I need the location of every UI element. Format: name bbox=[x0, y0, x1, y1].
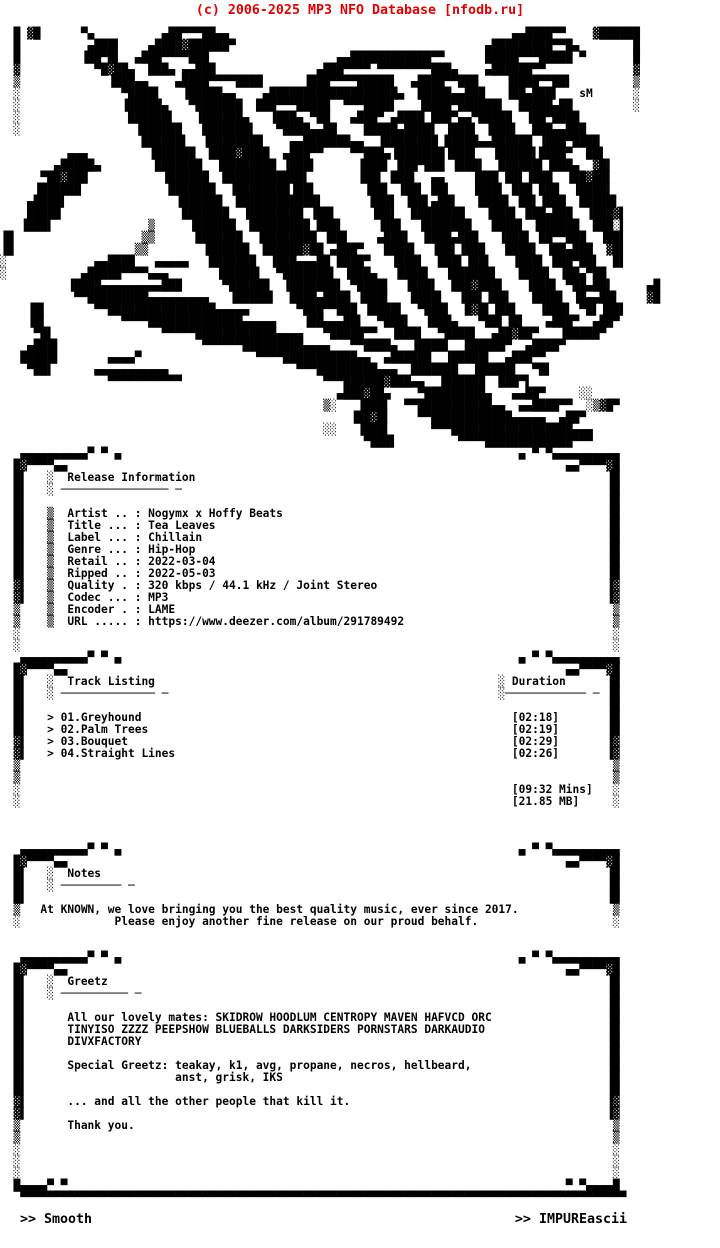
ascii-logo: █ ▓█ ▀▄ ▄██▀▀▀██▄▄ ▄▄████▀▀ ▓██████ █ ▄█… bbox=[0, 28, 720, 448]
track-listing-section: ▄▄▄▄▄▄▄▄▄▄▀ ▀ ▄ ▄ ▀ ▀▄▄▄▄▄▄▄▄▄▄ █▓▀▀▀▀▄▄… bbox=[0, 652, 720, 808]
section-gap bbox=[0, 808, 720, 844]
section-gap bbox=[0, 928, 720, 952]
notes-section: ▄▄▄▄▄▄▄▄▄▄▀ ▀ ▄ ▄ ▀ ▀▄▄▄▄▄▄▄▄▄▄ █▓▀▀▀▀▄▄… bbox=[0, 844, 720, 928]
footer-group-name: >> Smooth bbox=[20, 1213, 92, 1248]
release-info-section: ▄▄▄▄▄▄▄▄▄▄▀ ▀ ▄ ▄ ▀ ▀▄▄▄▄▄▄▄▄▄▄ █▓▀▀▀▀▄▄… bbox=[0, 448, 720, 652]
watermark-header: (c) 2006-2025 MP3 NFO Database [nfodb.ru… bbox=[0, 0, 720, 28]
nfo-page: (c) 2006-2025 MP3 NFO Database [nfodb.ru… bbox=[0, 0, 720, 1248]
greetz-section: ▄▄▄▄▄▄▄▄▄▄▀ ▀ ▄ ▄ ▀ ▀▄▄▄▄▄▄▄▄▄▄ █▓▀▀▀▀▄▄… bbox=[0, 952, 720, 1168]
footer-ascii-credit: >> IMPUREascii bbox=[515, 1213, 627, 1248]
bottom-frame: ░ ░ █▄▄▄▄▀ ▀ ▀ ▀▄▄▄▄█ bbox=[0, 1168, 720, 1204]
watermark-footer: >> Smooth >> IMPUREascii bbox=[0, 1204, 720, 1248]
